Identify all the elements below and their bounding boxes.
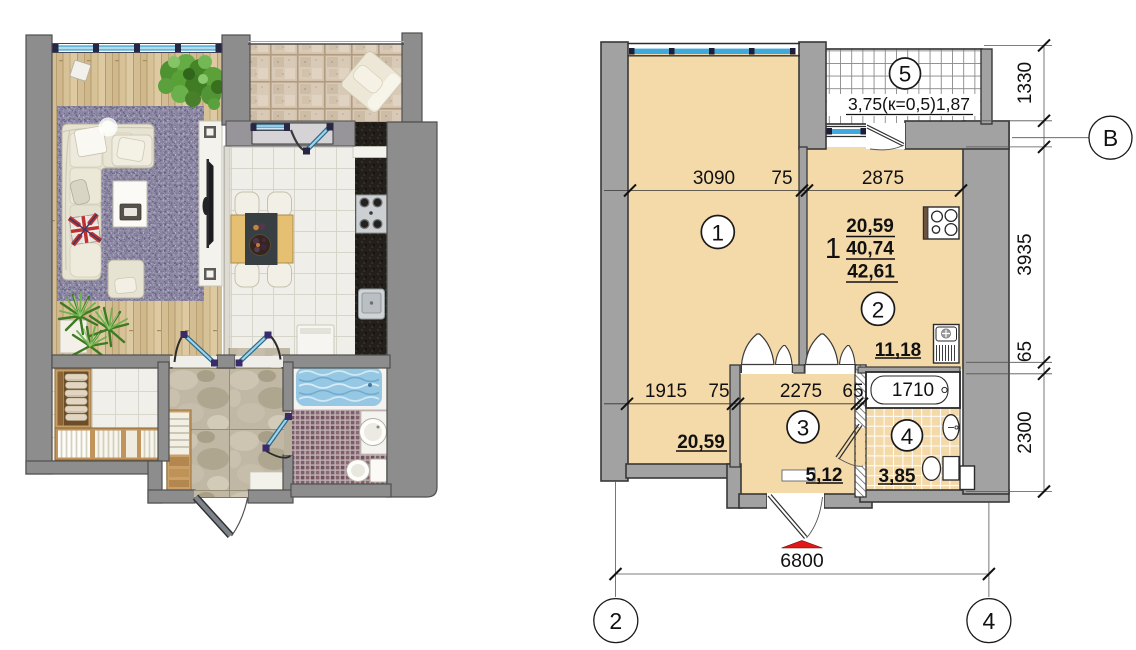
svg-text:3090: 3090 [693, 168, 735, 189]
svg-text:6800: 6800 [780, 550, 824, 572]
svg-text:42,61: 42,61 [847, 262, 895, 283]
svg-text:20,59: 20,59 [677, 432, 725, 453]
svg-text:40,74: 40,74 [846, 239, 894, 260]
svg-text:4: 4 [983, 608, 996, 634]
svg-text:20,59: 20,59 [846, 216, 894, 237]
svg-text:2300: 2300 [1015, 411, 1036, 453]
svg-text:2: 2 [872, 297, 885, 322]
svg-text:1915: 1915 [645, 381, 687, 402]
svg-text:В: В [1103, 125, 1118, 151]
svg-text:3935: 3935 [1015, 233, 1036, 275]
svg-text:65: 65 [842, 381, 863, 402]
svg-text:75: 75 [771, 168, 792, 189]
svg-text:1: 1 [825, 233, 841, 265]
svg-text:1330: 1330 [1015, 62, 1036, 104]
svg-text:2: 2 [609, 608, 622, 634]
svg-text:3: 3 [797, 415, 810, 440]
svg-text:2275: 2275 [780, 381, 822, 402]
svg-text:65: 65 [1015, 341, 1036, 362]
svg-text:75: 75 [708, 381, 729, 402]
svg-text:2875: 2875 [862, 168, 904, 189]
svg-text:5: 5 [899, 62, 912, 87]
svg-text:4: 4 [901, 424, 914, 449]
svg-text:3,75(к=0,5)1,87: 3,75(к=0,5)1,87 [848, 94, 970, 114]
svg-text:1710: 1710 [892, 380, 934, 401]
svg-text:1: 1 [712, 221, 725, 246]
